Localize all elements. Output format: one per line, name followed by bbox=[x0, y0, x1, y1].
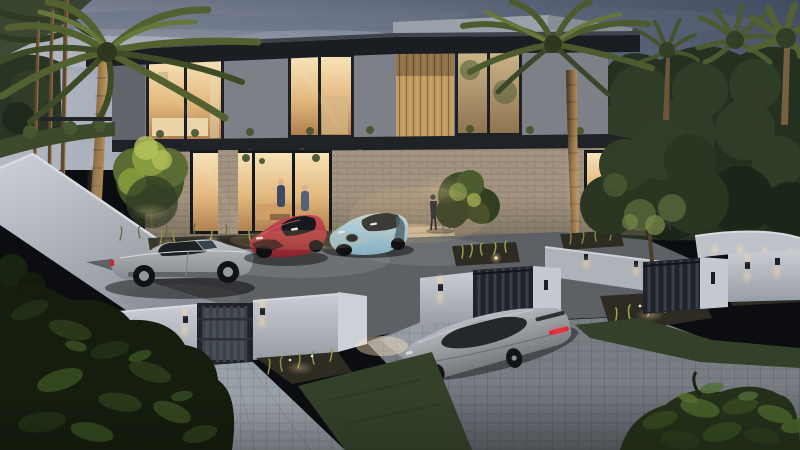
vehicle-gate-closed bbox=[643, 258, 700, 314]
bottom-vignette bbox=[0, 395, 800, 450]
villa-render-image bbox=[0, 0, 800, 450]
headlight-pool bbox=[356, 336, 408, 356]
pedestrian-wall-right bbox=[253, 292, 367, 360]
bedroom-window-middle bbox=[288, 54, 354, 138]
